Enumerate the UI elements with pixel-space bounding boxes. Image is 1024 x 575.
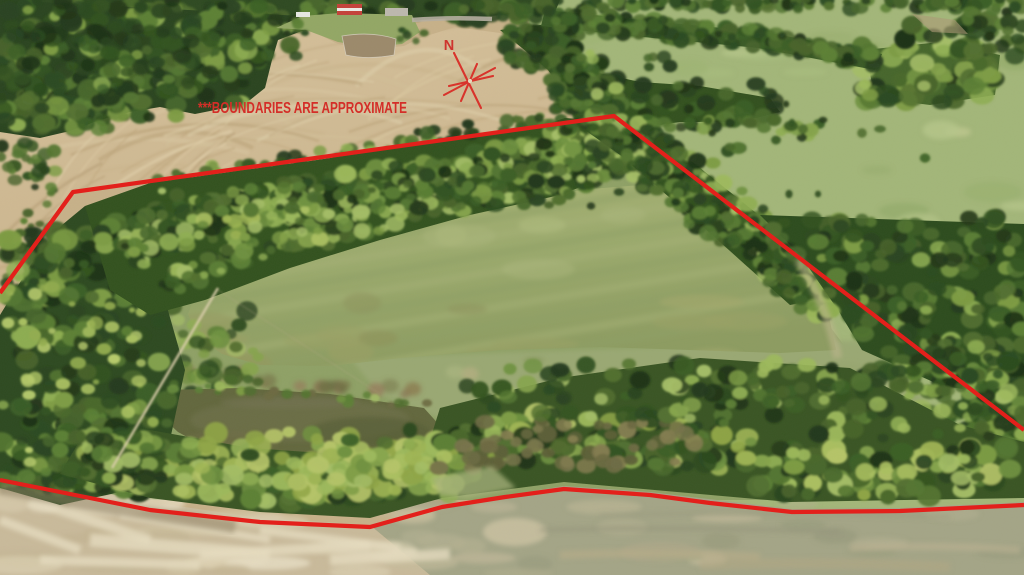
svg-text:***BOUNDARIES ARE APPROXIMATE: ***BOUNDARIES ARE APPROXIMATE [198, 100, 407, 117]
svg-text:N: N [444, 38, 454, 54]
